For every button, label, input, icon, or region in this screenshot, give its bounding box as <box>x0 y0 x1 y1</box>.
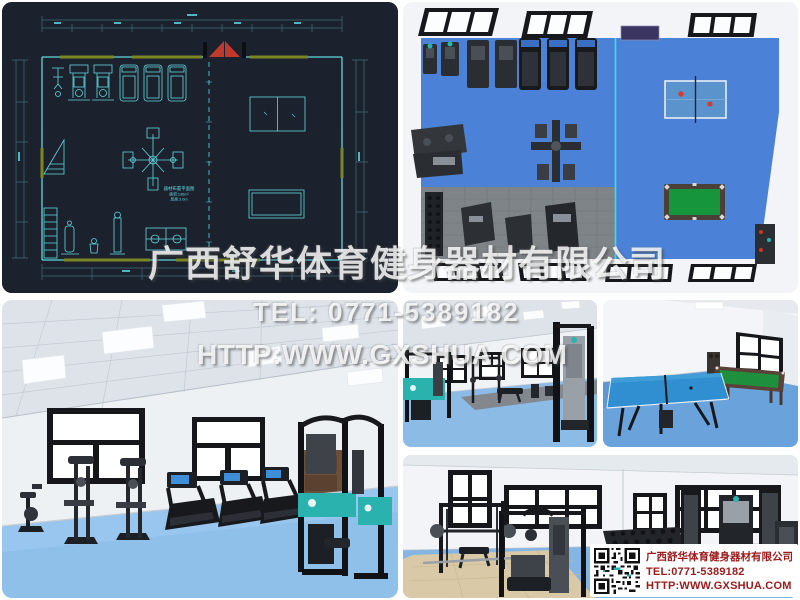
games-room-image <box>603 300 798 447</box>
qr-code-icon <box>594 548 640 594</box>
contact-card: 广西舒华体育健身器材有限公司 TEL:0771-5389182 HTTP:WWW… <box>590 544 798 597</box>
plan-annotation-line3: 层高:3.0m <box>170 197 187 202</box>
wall-rack <box>755 224 775 264</box>
table-tennis-table <box>665 76 726 123</box>
plan-annotation-line2: 面积:136m² <box>169 192 189 197</box>
strength-room-image <box>403 300 597 447</box>
cardio-room-image <box>2 300 398 598</box>
paddle-red-2 <box>707 101 712 106</box>
contact-tel: TEL:0771-5389182 <box>646 566 793 578</box>
strength-room-scene <box>403 300 597 447</box>
contact-company: 广西舒华体育健身器材有限公司 <box>646 549 793 564</box>
cable-machine-right <box>553 322 594 442</box>
paddle-red-1 <box>678 91 683 96</box>
contact-lines: 广西舒华体育健身器材有限公司 TEL:0771-5389182 HTTP:WWW… <box>646 549 793 592</box>
top-view-scene <box>403 2 798 293</box>
games-room-scene <box>603 300 798 447</box>
floor-plan-drawing: 器材布置平面图 面积:136m² 层高:3.0m <box>2 2 398 293</box>
contact-url: HTTP:WWW.GXSHUA.COM <box>646 580 793 592</box>
cardio-room-scene <box>2 300 398 598</box>
strength-cluster-left <box>411 124 467 178</box>
window-left <box>47 408 145 484</box>
ceiling-light <box>695 302 723 309</box>
plan-annotation-line1: 器材布置平面图 <box>164 185 195 192</box>
floor-plan-image: 器材布置平面图 面积:136m² 层高:3.0m <box>2 2 398 293</box>
top-view-render-image <box>403 2 798 293</box>
purple-mat <box>621 26 659 40</box>
promo-collage: 器材布置平面图 面积:136m² 层高:3.0m <box>0 0 800 600</box>
billiards-table <box>664 183 725 220</box>
